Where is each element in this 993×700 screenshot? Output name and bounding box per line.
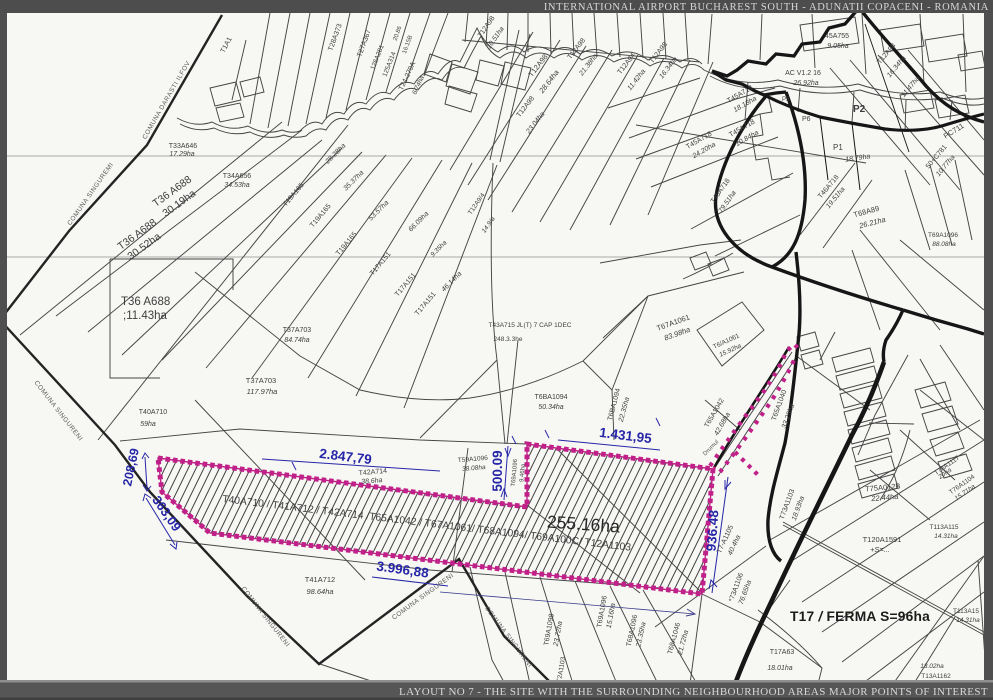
svg-text:T113A115: T113A115 [929, 524, 958, 531]
svg-text:84.74ha: 84.74ha [284, 337, 309, 344]
svg-text:50.34ha: 50.34ha [538, 404, 563, 411]
svg-text:45A755: 45A755 [825, 33, 849, 40]
svg-text:17.29ha: 17.29ha [169, 151, 194, 158]
svg-text:P6: P6 [802, 116, 811, 123]
svg-text:+S=...: +S=... [870, 545, 890, 554]
svg-text:117.97ha: 117.97ha [247, 387, 278, 396]
svg-text:500.09: 500.09 [490, 450, 505, 491]
svg-text:34.53ha: 34.53ha [224, 182, 249, 189]
svg-text:T43A715 JL(T) 7 CAP 1DEC: T43A715 JL(T) 7 CAP 1DEC [489, 322, 572, 329]
svg-text:T69A1096: T69A1096 [928, 232, 958, 239]
svg-text:T33A646: T33A646 [169, 143, 198, 150]
svg-text:18.01ha: 18.01ha [767, 665, 792, 672]
svg-text:T37A703: T37A703 [283, 327, 312, 334]
svg-text:88.08ha: 88.08ha [932, 241, 956, 248]
svg-text:T13A1162: T13A1162 [921, 673, 951, 680]
svg-text:T113A15: T113A15 [953, 608, 979, 615]
svg-text:98.64ha: 98.64ha [306, 587, 333, 596]
svg-text:9.05ha: 9.05ha [827, 43, 849, 50]
svg-text:T6BA1094: T6BA1094 [534, 394, 567, 401]
svg-text:T17 / FERMA S=96ha: T17 / FERMA S=96ha [790, 609, 930, 624]
svg-text:T41A712: T41A712 [305, 575, 335, 584]
svg-text:T40A710: T40A710 [139, 409, 168, 416]
svg-text:26.92ha: 26.92ha [792, 80, 818, 87]
svg-text:;11.43ha: ;11.43ha [123, 310, 168, 322]
svg-text:248.3.3he: 248.3.3he [494, 336, 523, 343]
svg-text:P1: P1 [833, 143, 843, 152]
svg-text:T120A1591: T120A1591 [863, 535, 902, 544]
svg-text:LAYOUT NO 7 - THE SITE WITH TH: LAYOUT NO 7 - THE SITE WITH THE SURROUND… [399, 686, 988, 698]
svg-text:59ha: 59ha [140, 421, 156, 428]
svg-text:P5.: P5. [782, 97, 791, 103]
svg-text:T37A703: T37A703 [246, 376, 276, 385]
svg-text:14.31ha: 14.31ha [934, 533, 958, 540]
svg-text:13.02ha: 13.02ha [920, 663, 944, 670]
svg-text:AC V1.2 16: AC V1.2 16 [785, 70, 821, 77]
svg-text:T34A656: T34A656 [223, 173, 252, 180]
svg-text:T17A63: T17A63 [770, 649, 795, 656]
svg-text:T36 A688: T36 A688 [121, 296, 170, 308]
svg-text:P2: P2 [853, 104, 866, 115]
svg-text:14.31ha: 14.31ha [956, 617, 980, 624]
svg-text:INTERNATIONAL AIRPORT BUCHARES: INTERNATIONAL AIRPORT BUCHAREST SOUTH - … [544, 2, 989, 13]
